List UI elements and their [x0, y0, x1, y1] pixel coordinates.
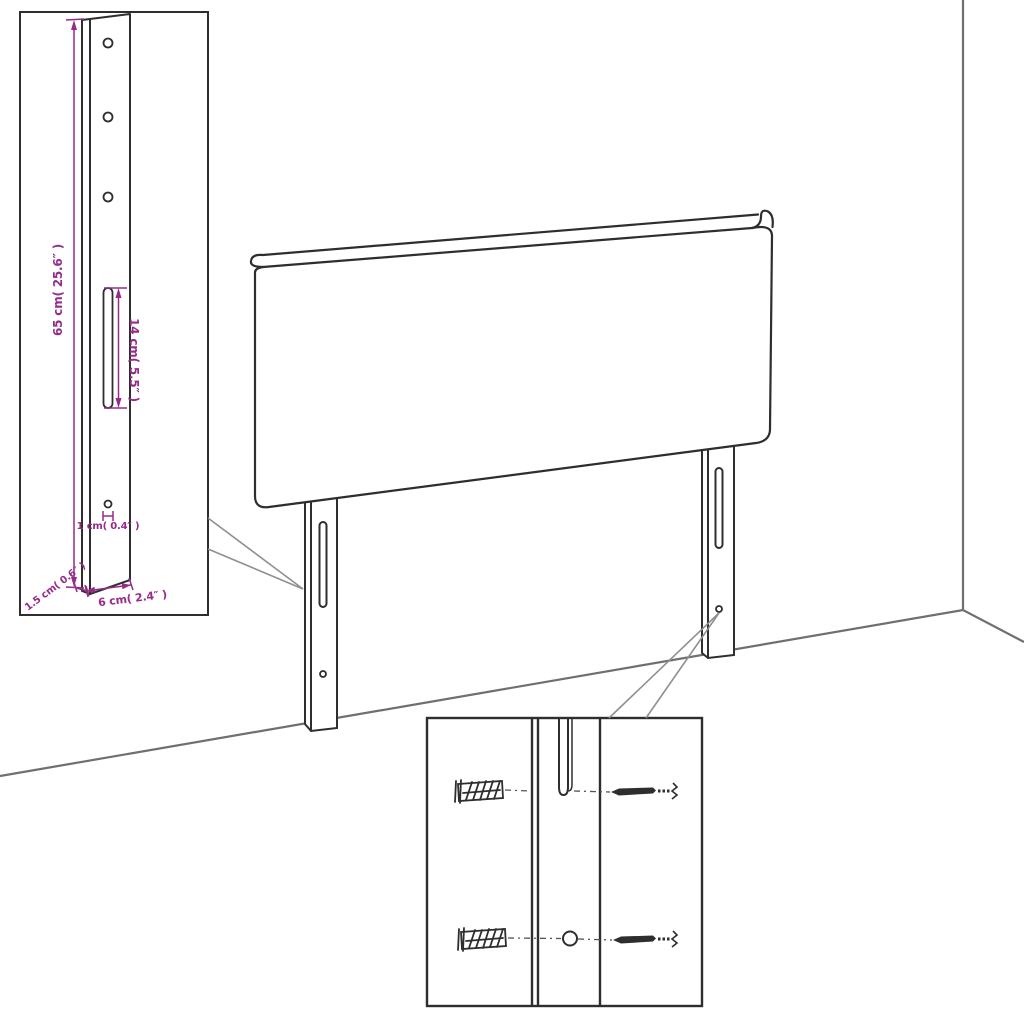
- bracket-small-hole: [105, 501, 112, 508]
- mounting-leg-left: [305, 490, 337, 731]
- callout-line-left-lower: [208, 549, 303, 589]
- bracket-hole-2: [104, 113, 113, 122]
- label-slot-length: 14 cm( 5.5″ ): [127, 318, 141, 402]
- headboard: [251, 211, 773, 508]
- label-hole-diameter: 1 cm( 0.4″ ): [77, 521, 140, 532]
- headboard-top-roll-curl: [752, 211, 773, 228]
- leg-left-slot: [320, 522, 327, 607]
- bracket-hole-1: [104, 39, 113, 48]
- bracket-drawing: [82, 14, 130, 594]
- callout-line-right-inner: [646, 613, 719, 718]
- hardware-detail-inset: [427, 718, 702, 1006]
- hardware-inset-border: [427, 718, 702, 1006]
- label-height: 65 cm( 25.6″ ): [51, 244, 65, 336]
- bracket-detail-inset: 65 cm( 25.6″ ) 14 cm( 5.5″ ) 1 cm( 0.4″ …: [20, 12, 208, 615]
- bracket-hole-3: [104, 193, 113, 202]
- diagram-canvas: 65 cm( 25.6″ ) 14 cm( 5.5″ ) 1 cm( 0.4″ …: [0, 0, 1024, 1024]
- leg-right-screw-hole: [716, 606, 722, 612]
- callout-line-left-upper: [208, 518, 303, 589]
- callout-lines-right: [609, 613, 719, 718]
- bracket-slot: [104, 288, 113, 408]
- leg-right-slot: [716, 468, 723, 548]
- callout-lines-left: [208, 518, 303, 589]
- headboard-panel: [255, 227, 772, 507]
- callout-line-right-outer: [609, 613, 719, 718]
- leg-left-screw-hole: [320, 671, 326, 677]
